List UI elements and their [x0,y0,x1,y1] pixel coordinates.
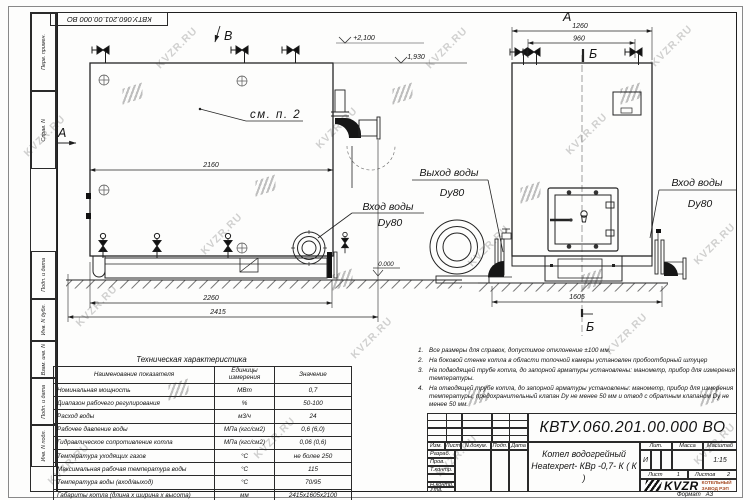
view-a-arrow-label: А [57,126,66,140]
section-b-bottom-label: Б [586,320,594,334]
dimension-1260: 1260 [572,23,588,30]
sheet-cell: Лист 1 [640,470,688,479]
note-number: 3. [418,367,429,384]
rev-col-list: Лист [445,442,461,450]
param-value: 70/95 [275,476,352,489]
dimension-2415: 2415 [209,309,226,316]
note-number: 1. [418,347,429,355]
position-mark-icon [237,76,247,86]
note-item: 1.Все размеры для справок, допустимое от… [418,347,736,355]
sheets-value: 2 [727,472,730,478]
sig-razrab: Разраб. [427,450,455,458]
table-row: Габариты котла (длина х ширина х высота)… [54,489,352,500]
col-header-value: Значение [275,367,352,384]
param-value: 0,6 (6,0) [275,423,352,436]
company-name: KVZR [664,479,699,492]
param-value: не более 250 [275,449,352,462]
param-units: °С [215,449,275,462]
param-name: Температура уходящих газов [54,449,215,462]
tech-table-header-row: Наименование показателя Единицы измерени… [54,367,352,384]
param-units: МПа (кгс/см2) [215,423,275,436]
param-name: Номинальная мощность [54,384,215,397]
format-value: А3 [706,492,713,498]
company-sub-line2: ЗАВОД РЭП [702,486,732,492]
note-text: На подводящей трубе котла, до запорной а… [429,367,736,384]
table-row: Рабочее давление водыМПа (кгс/см2)0,6 (6… [54,423,352,436]
note-item: 3.На подводящей трубе котла, до запорной… [418,367,736,384]
section-b-top-label: Б [589,47,597,61]
param-value: 50-100 [275,397,352,410]
note-text: На отводящей трубе котла, до запорной ар… [429,385,736,410]
note-item: 4.На отводящей трубе котла, до запорной … [418,385,736,410]
param-name: Габариты котла (длина х ширина х высота) [54,489,215,500]
inlet-front-dn-label: Dy80 [688,198,713,210]
doc-name-line2: Heatexpert- КВр -0,7- К ( К ) [529,461,639,485]
inlet-front-label: Вход воды [672,177,723,189]
valve-icon [153,233,161,258]
valve-icon [231,46,248,63]
level-zero-text: 0.000 [378,261,394,268]
note-text: Все размеры для справок, допустимое откл… [429,347,736,355]
valve-icon [282,46,299,63]
table-row: Максимальная рабочая температура воды°С1… [54,463,352,476]
table-row: Температура воды (вход/выход)°С70/95 [54,476,352,489]
param-value: 0,7 [275,384,352,397]
tech-table: Наименование показателя Единицы измерени… [53,366,352,500]
note-number: 2. [418,357,429,365]
company-logo-cell: KVZR КОТЕЛЬНЫЙ ЗАВОД РЭП [640,479,737,492]
dimension-960: 960 [573,36,585,43]
title-block: Изм. Лист N докум. Подп. Дата Разраб. Пр… [427,413,737,492]
table-row: Диапазон рабочего регулирования%50-100 [54,397,352,410]
param-units: °С [215,463,275,476]
control-panel [613,92,641,115]
boiler-base [93,256,327,278]
tech-characteristics: Техническая характеристика Наименование … [53,354,330,500]
position-mark-icon [237,243,247,253]
inlet-label: Вход воды [363,201,414,213]
table-row: Гидравлическое сопротивление котлаМПа (к… [54,436,352,449]
param-name: Температура воды (вход/выход) [54,476,215,489]
rev-col-podp: Подп. [491,442,509,450]
furnace-door [548,188,618,251]
table-row: Расход водым3/ч24 [54,410,352,423]
rev-col-ndoc: N докум. [461,442,491,450]
sheets-label: Листов [695,472,715,478]
revision-grid [427,413,528,442]
note-number: 4. [418,385,429,410]
param-units: мм [215,489,275,500]
sheet-value: 1 [677,472,680,478]
outlet-label: Выход воды [419,167,478,179]
param-name: Максимальная рабочая температура воды [54,463,215,476]
valve-icon [224,233,232,258]
sheet-label: Лист [648,472,662,478]
param-value: 115 [275,463,352,476]
param-units: °С [215,476,275,489]
param-value: 0,06 (0,6) [275,436,352,449]
note-item: 2.На боковой стенке котла в области топо… [418,357,736,365]
inlet-dn-label: Dy80 [378,217,403,229]
level-top-text: +2,100 [353,35,375,42]
scale-header: Масштаб [703,442,737,450]
param-units: % [215,397,275,410]
format-word: Формат [677,492,701,498]
sig-tkontr: Т.контр. [427,466,455,474]
sheets-cell: Листов 2 [688,470,737,479]
col-header-units: Единицы измерения [215,367,275,384]
doc-name-line1: Котел водогрейный [529,449,639,461]
param-name: Диапазон рабочего регулирования [54,397,215,410]
mass-header: Масса [672,442,703,450]
view-a-title: А [562,10,571,24]
param-units: МВт [215,384,275,397]
sig-prov: Пров. [427,458,455,466]
level-middle-text: 1,930 [407,54,425,61]
col-header-name: Наименование показателя [54,367,215,384]
valve-icon [92,46,109,63]
company-subtitle: КОТЕЛЬНЫЙ ЗАВОД РЭП [702,480,732,491]
param-units: м3/ч [215,410,275,423]
document-name: Котел водогрейный Heatexpert- КВр -0,7- … [528,442,640,492]
kvzr-logo-icon [643,479,662,492]
company-sub-line1: КОТЕЛЬНЫЙ [702,480,732,486]
rev-col-izm: Изм. [427,442,445,450]
inlet-connection [655,229,686,279]
dimension-1605: 1605 [569,294,585,301]
param-name: Рабочее давление воды [54,423,215,436]
param-value: 24 [275,410,352,423]
dimension-2160: 2160 [202,162,219,169]
tech-table-title: Техническая характеристика [53,354,330,366]
blower-fan [430,220,489,283]
scale-value: 1:15 [703,450,737,470]
outlet-pipe-assembly [331,90,395,188]
valve-icon [99,233,107,258]
mass-value [672,450,703,470]
sig-blank [427,474,455,482]
param-name: Гидравлическое сопротивление котла [54,436,215,449]
outlet-dn-label: Dy80 [440,187,465,199]
param-units: МПа (кгс/см2) [215,436,275,449]
table-row: Температура уходящих газов°Сне более 250 [54,449,352,462]
param-name: Расход воды [54,410,215,423]
drawing-sheet: KVZR.RU KVZR.RU KVZR.RU KVZR.RU KVZR.RU … [0,0,750,500]
lit-value: И [640,450,651,470]
sig-utv: Утв. [427,487,455,492]
see-item-callout: см. п. 2 [250,109,301,121]
note-text: На боковой стенке котла в области топочн… [429,357,736,365]
valve-icon [342,232,349,253]
table-row: Номинальная мощностьМВт0,7 [54,384,352,397]
drawing-designation: КВТУ.060.201.00.000 ВО [528,413,737,442]
left-view: +2,100 1,930 см. п. 2 [57,26,467,322]
position-mark-icon [99,75,109,85]
position-mark-icon [99,185,109,195]
lit-header: Лит. [640,442,672,450]
format-label: Формат А3 [640,492,750,498]
param-value: 2415х1605х2100 [275,489,352,500]
rev-col-data: Дата [509,442,528,450]
notes-list: 1.Все размеры для справок, допустимое от… [418,347,736,411]
dimension-2260: 2260 [202,295,219,302]
view-v-arrow-label: В [224,29,232,43]
